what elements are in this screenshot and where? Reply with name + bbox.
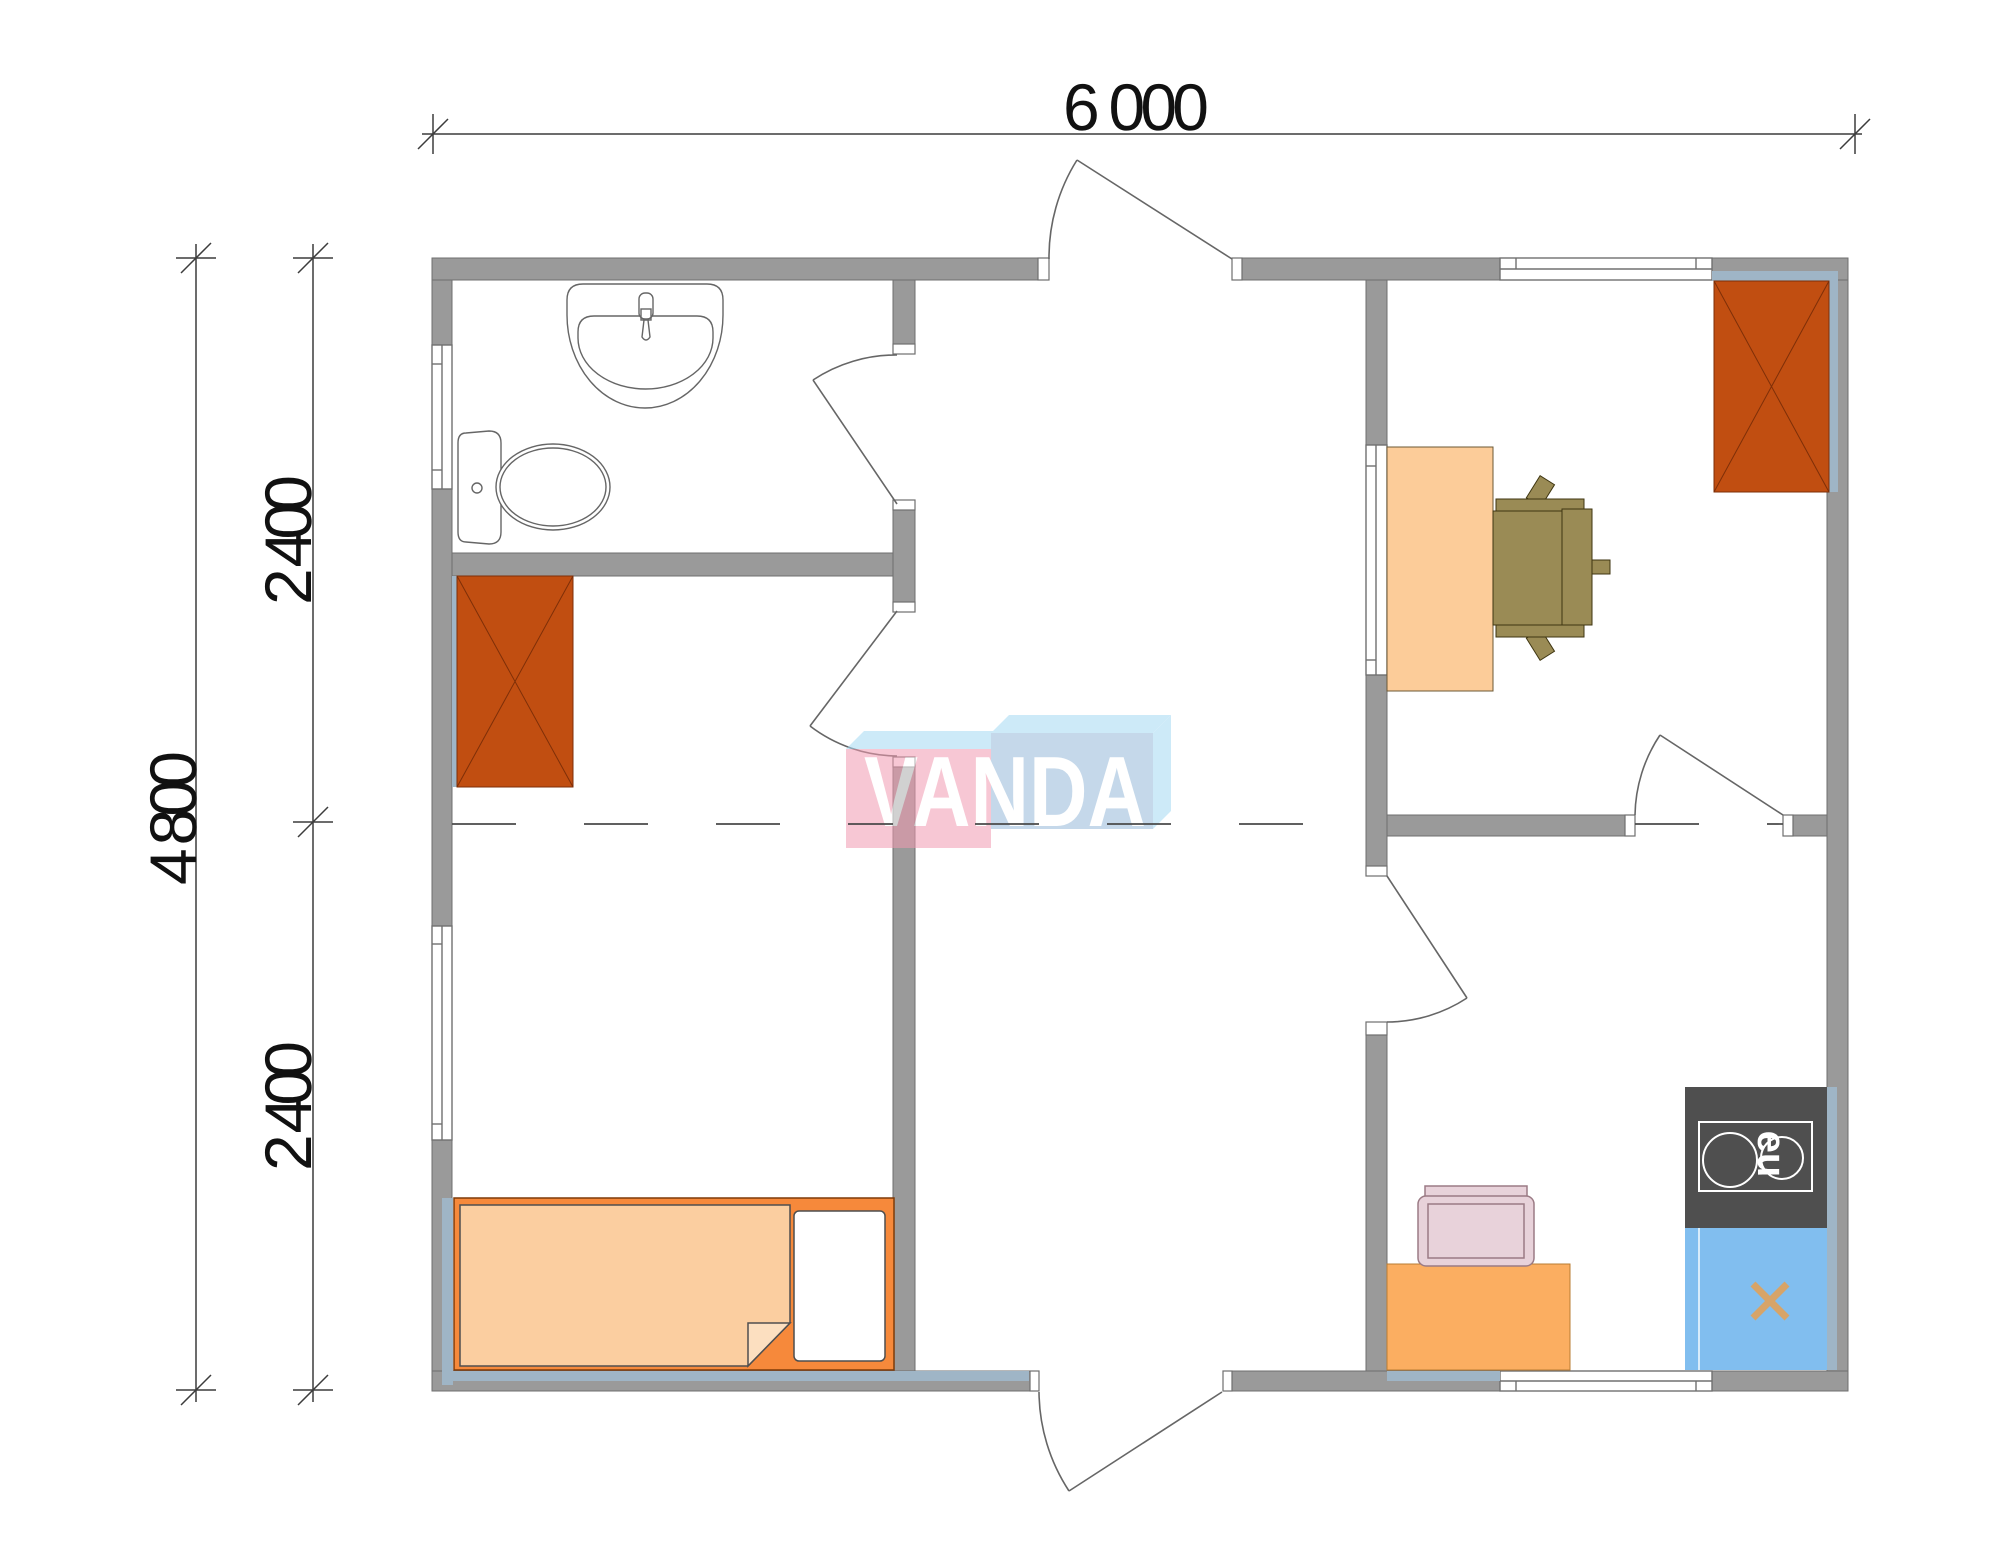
svg-text:2 400: 2 400 <box>251 1041 325 1171</box>
svg-text:VANDA: VANDA <box>864 736 1146 848</box>
svg-text:6 000: 6 000 <box>1063 70 1209 144</box>
svg-text:2 400: 2 400 <box>251 475 325 605</box>
svg-text:4 800: 4 800 <box>136 751 210 885</box>
svg-text:eu: eu <box>1749 1131 1793 1178</box>
